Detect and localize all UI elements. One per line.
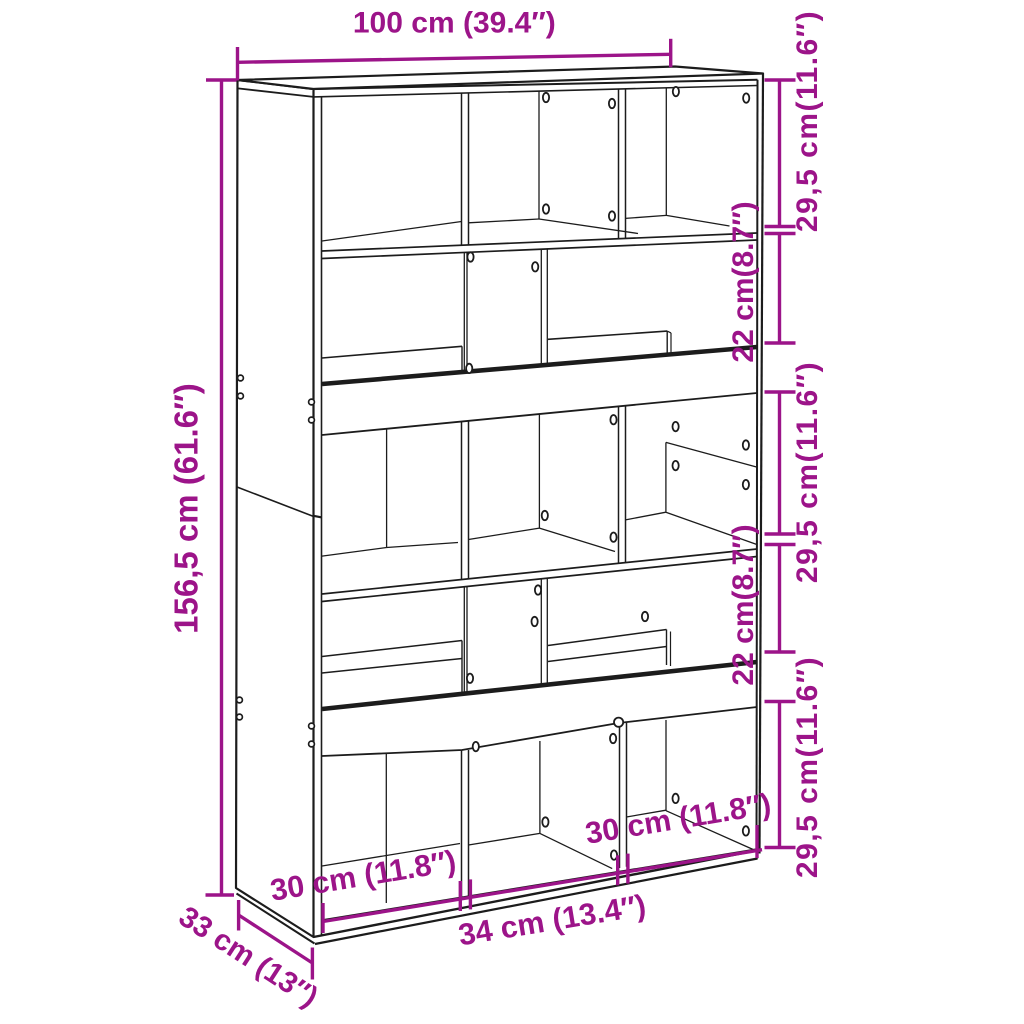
svg-text:22 cm(8.7″): 22 cm(8.7″) [727, 524, 760, 685]
svg-text:156,5 cm (61.6″): 156,5 cm (61.6″) [167, 383, 204, 634]
svg-text:29,5 cm(11.6″): 29,5 cm(11.6″) [791, 656, 824, 878]
svg-text:100 cm (39.4″): 100 cm (39.4″) [353, 6, 556, 39]
svg-text:22 cm(8.7″): 22 cm(8.7″) [727, 201, 760, 362]
svg-text:29,5 cm(11.6″): 29,5 cm(11.6″) [791, 361, 824, 583]
svg-text:29,5 cm(11.6″): 29,5 cm(11.6″) [791, 10, 824, 232]
